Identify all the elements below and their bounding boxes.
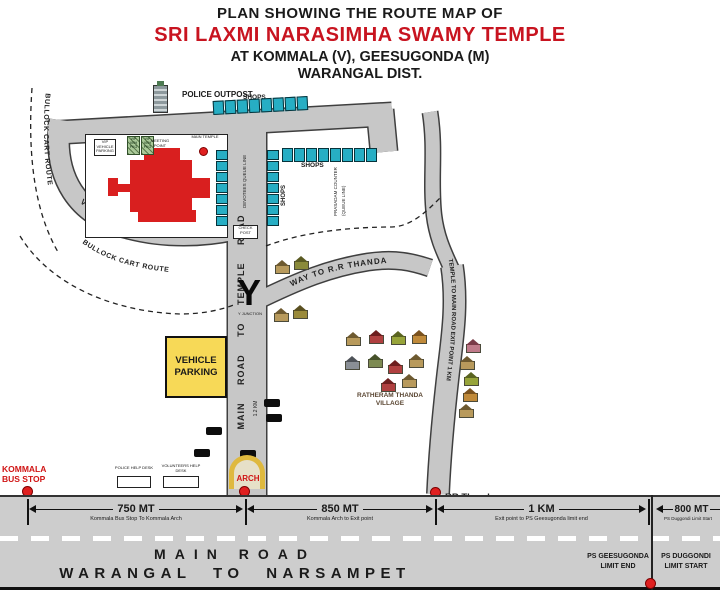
shops-column-left: [216, 150, 228, 226]
shop-stall: [366, 148, 377, 162]
temple-building-base: [138, 210, 196, 222]
vip-parking-box-1-label: VIP VEH PKG: [130, 137, 137, 149]
ps-right-line1: PS DUGGONDI: [656, 552, 716, 562]
prasadam-counter-label: PRASADAM COUNTER: [333, 166, 338, 216]
main-temple-marker-dot: [199, 147, 208, 156]
arrowhead-left-icon: [247, 505, 254, 513]
vehicle-parking-area: VEHICLE PARKING: [165, 336, 227, 398]
bullock-route-dash-right: [266, 196, 442, 246]
main-road-to-temple-road-label: MAIN ROAD TO TEMPLE ROAD: [236, 214, 246, 429]
arrowhead-right-icon: [236, 505, 243, 513]
check-post-sign: CHECK POST: [233, 225, 258, 239]
distance-detail: Kommala Arch to Exit point: [247, 516, 433, 522]
meeting-point-label: MEETING POINT: [146, 139, 174, 148]
distance-segment-800mt: 800 MT PS Duggondi Limit Start: [656, 503, 720, 521]
shop-stall: [267, 183, 279, 193]
distance-value: 850 MT: [317, 503, 362, 515]
main-road-name-line1: MAIN ROAD: [0, 546, 470, 562]
distance-arrow: 1 KM: [437, 503, 646, 515]
ps-left-line1: PS GEESUGONDA: [586, 552, 650, 562]
house-icon: [412, 335, 427, 344]
arrowhead-left-icon: [437, 505, 444, 513]
ps-left-line2: LIMIT END: [586, 562, 650, 572]
shop-stall: [318, 148, 329, 162]
distance-value: 750 MT: [113, 503, 158, 515]
main-road-name: MAIN ROAD WARANGAL TO NARSAMPET: [0, 546, 470, 582]
distance-arrow: 800 MT: [656, 503, 720, 515]
village-label: RATHERAM THANDA VILLAGE: [348, 392, 432, 407]
ps-right-line2: LIMIT START: [656, 562, 716, 572]
y-junction-icon: Y: [237, 276, 261, 310]
vehicle-icon: [266, 414, 282, 422]
shop-stall: [306, 148, 317, 162]
arrowhead-right-icon: [639, 505, 646, 513]
temple-building-main: [130, 160, 192, 212]
house-icon: [274, 313, 289, 322]
help-desk-2: [163, 476, 199, 488]
house-icon: [460, 361, 475, 370]
shop-stall: [267, 216, 279, 226]
distance-segment-1km: 1 KM Exit point to PS Geesugonda limit e…: [437, 503, 646, 522]
devotees-queue-label: DEVOTEES QUEUE LINE: [242, 155, 247, 208]
shops-column-label: SHOPS: [281, 185, 287, 206]
shop-stall: [249, 99, 261, 114]
distance-arrow: 750 MT: [29, 503, 243, 515]
vip-vehicle-parking-sign: VIP VEHICLE PARKING: [94, 139, 116, 156]
ps-geesugonda-limit-label: PS GEESUGONDA LIMIT END: [586, 552, 650, 572]
ps-limit-marker-dot: [645, 578, 656, 589]
shops-column-right: [267, 150, 279, 226]
y-junction-label: Y JUNCTION: [228, 311, 272, 316]
arrowhead-left-icon: [29, 505, 36, 513]
shop-stall: [261, 98, 273, 113]
distance-segment-850mt: 850 MT Kommala Arch to Exit point: [247, 503, 433, 522]
distance-segment-750mt: 750 MT Kommala Bus Stop To Kommala Arch: [29, 503, 243, 522]
main-road-name-line2: WARANGAL TO NARSAMPET: [0, 565, 470, 582]
help-desk-2-label: VOLUNTEERS HELP DESK: [160, 464, 202, 473]
distance-value: 1 KM: [524, 503, 558, 515]
shop-stall: [216, 216, 228, 226]
house-icon: [466, 344, 481, 353]
distance-tick: [648, 499, 650, 525]
road-centerline: [0, 536, 720, 541]
house-icon: [388, 365, 403, 374]
vehicle-parking-label: VEHICLE PARKING: [167, 355, 225, 379]
shop-stall: [297, 96, 309, 111]
help-desk-1-label: POLICE HELP DESK: [114, 466, 154, 471]
house-icon: [369, 335, 384, 344]
house-icon: [463, 393, 478, 402]
ps-limit-divider: [651, 495, 653, 590]
shop-stall: [216, 172, 228, 182]
distance-arrow: 850 MT: [247, 503, 433, 515]
distance-detail: PS Duggondi Limit Start: [656, 516, 720, 521]
house-icon: [368, 359, 383, 368]
vehicle-icon: [206, 427, 222, 435]
shops-mid-label: SHOPS: [301, 162, 324, 169]
shop-stall: [216, 194, 228, 204]
house-icon: [381, 383, 396, 392]
house-icon: [294, 261, 309, 270]
temple-building-wing: [192, 178, 210, 198]
map-canvas: BULLOCK CART ROUTE VIP VEHICLE ROUTE BUL…: [0, 0, 720, 495]
shop-stall: [354, 148, 365, 162]
distance-detail: Kommala Bus Stop To Kommala Arch: [29, 516, 243, 522]
shop-stall: [216, 205, 228, 215]
shop-stall: [294, 148, 305, 162]
shop-stall: [237, 99, 249, 114]
shop-stall: [267, 161, 279, 171]
house-icon: [346, 337, 361, 346]
help-desk-1: [117, 476, 151, 488]
house-icon: [402, 379, 417, 388]
shop-stall: [213, 100, 225, 115]
house-icon: [459, 409, 474, 418]
distance-value: 800 MT: [673, 504, 711, 515]
shop-stall: [285, 97, 297, 112]
shop-stall: [225, 100, 237, 115]
shop-stall: [267, 172, 279, 182]
bullock-route-dash-inner: [20, 236, 236, 314]
road-top-corner: [380, 110, 384, 152]
distance-detail: Exit point to PS Geesugonda limit end: [437, 516, 646, 522]
temple-building-arm-end: [108, 178, 118, 196]
shop-stall: [216, 161, 228, 171]
shop-stall: [267, 194, 279, 204]
kommala-bus-stop-label: KOMMALA BUS STOP: [2, 464, 60, 484]
road-top: [48, 114, 392, 133]
arch-label: ARCH: [231, 474, 265, 483]
temple-road-distance-label: 1.2 KM: [253, 401, 259, 417]
house-icon: [464, 377, 479, 386]
shop-stall: [273, 97, 285, 112]
arrowhead-left-icon: [656, 505, 663, 513]
vehicle-icon: [264, 399, 280, 407]
shop-stall: [330, 148, 341, 162]
main-temple-label: MAIN TEMPLE: [191, 135, 219, 140]
house-icon: [345, 361, 360, 370]
shop-stall: [216, 183, 228, 193]
house-icon: [275, 265, 290, 274]
shops-row-mid: [282, 148, 377, 162]
arrowhead-right-icon: [426, 505, 433, 513]
house-icon: [391, 336, 406, 345]
vehicle-icon: [194, 449, 210, 457]
house-icon: [293, 310, 308, 319]
ps-duggondi-limit-label: PS DUGGONDI LIMIT START: [656, 552, 716, 572]
shop-stall: [267, 150, 279, 160]
prasadam-queue-label: (QUEUE LINE): [341, 185, 346, 216]
shop-stall: [216, 150, 228, 160]
temple-building: [108, 146, 218, 230]
shop-stall: [267, 205, 279, 215]
route-map-page: PLAN SHOWING THE ROUTE MAP OF SRI LAXMI …: [0, 0, 720, 590]
shop-stall: [342, 148, 353, 162]
vip-parking-box-1: VIP VEH PKG: [127, 136, 140, 155]
arch-icon: [229, 455, 265, 489]
shop-stall: [282, 148, 293, 162]
police-outpost-building-icon: [153, 85, 168, 113]
house-icon: [409, 359, 424, 368]
